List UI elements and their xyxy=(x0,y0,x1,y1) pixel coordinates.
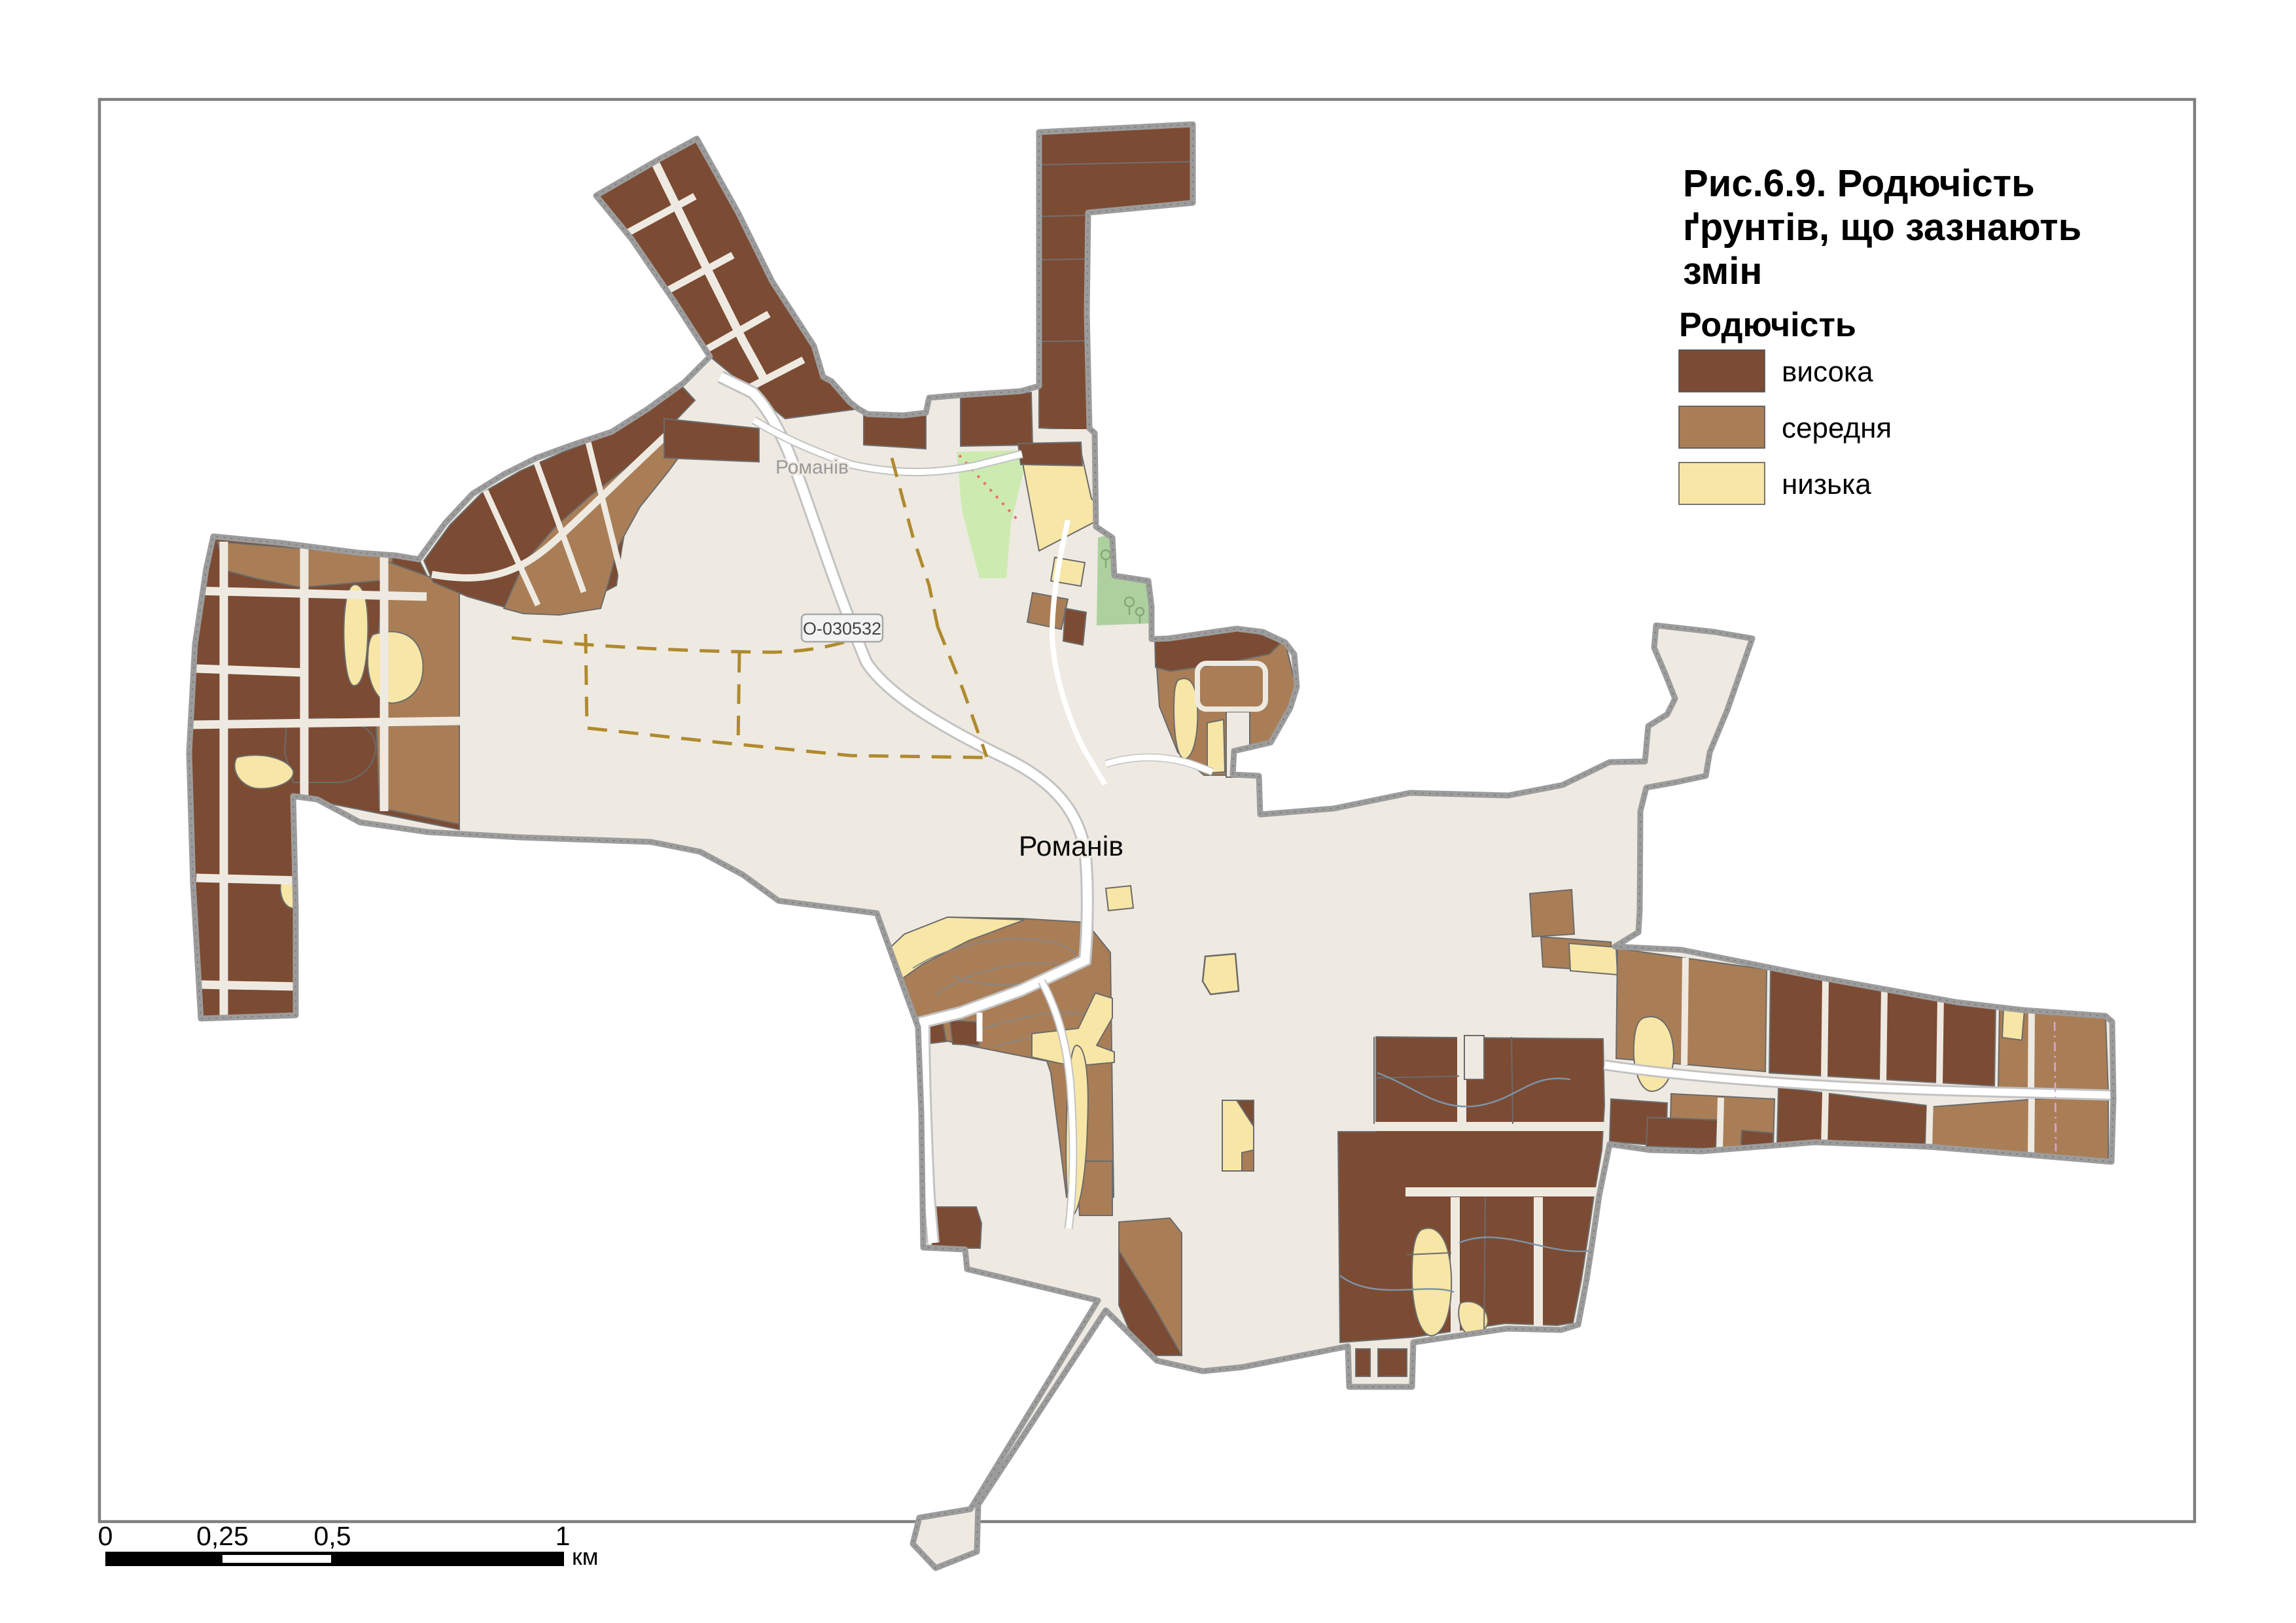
svg-text:середня: середня xyxy=(1782,412,1892,444)
svg-text:Рис.6.9. Родючість: Рис.6.9. Родючість xyxy=(1683,162,2035,205)
svg-text:Романів: Романів xyxy=(1019,831,1123,862)
svg-text:0,5: 0,5 xyxy=(314,1521,351,1551)
svg-text:1: 1 xyxy=(556,1521,571,1551)
svg-text:0,25: 0,25 xyxy=(196,1521,249,1551)
svg-text:висока: висока xyxy=(1782,356,1873,388)
svg-text:змін: змін xyxy=(1683,250,1762,292)
svg-text:Романів: Романів xyxy=(775,457,849,478)
svg-text:ґрунтів, що зазнають: ґрунтів, що зазнають xyxy=(1683,206,2081,249)
svg-text:0: 0 xyxy=(98,1521,113,1551)
svg-text:низька: низька xyxy=(1782,468,1871,500)
svg-text:О-030532: О-030532 xyxy=(803,619,881,638)
svg-text:км: км xyxy=(572,1543,599,1570)
svg-text:Родючість: Родючість xyxy=(1679,306,1856,344)
